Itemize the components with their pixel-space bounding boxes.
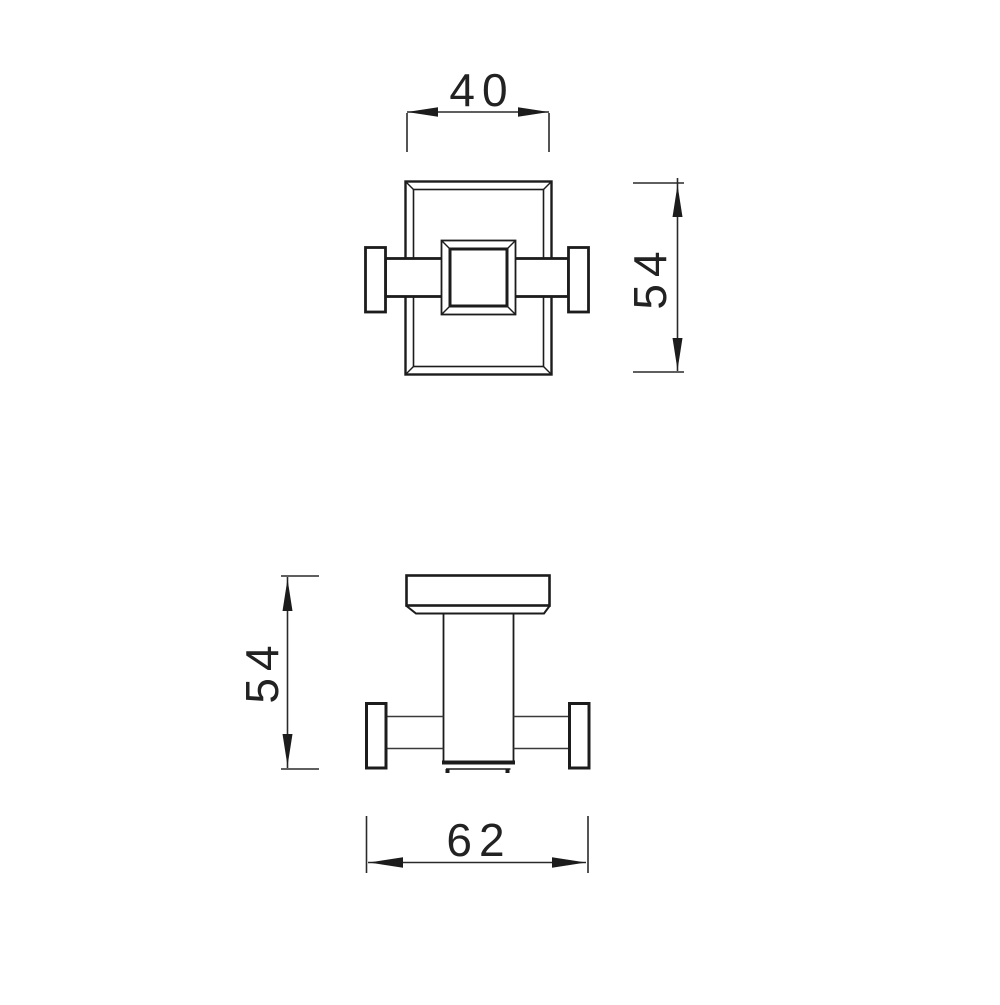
side-wallplate-skirt	[407, 606, 550, 614]
front-width-dimension: 40	[407, 64, 549, 152]
side-post-foot-left	[446, 769, 450, 773]
side-width-dimension: 62	[367, 814, 589, 873]
side-height-dimension: 54	[236, 576, 319, 769]
front-left-peg-cap	[366, 248, 386, 313]
front-center-boss-outer	[442, 241, 516, 315]
side-width-dim-label: 62	[446, 814, 511, 866]
side-height-arrow-down	[283, 734, 293, 766]
front-width-arrow-left	[407, 107, 438, 117]
front-width-arrow-right	[518, 107, 549, 117]
side-post-foot-right	[506, 769, 510, 773]
front-view	[366, 182, 589, 375]
side-wallplate	[407, 576, 550, 606]
side-height-arrow-up	[283, 579, 293, 611]
side-width-arrow-right	[552, 857, 586, 867]
side-right-peg-cap	[570, 704, 590, 769]
side-width-arrow-left	[369, 857, 403, 867]
side-left-peg-cap	[367, 704, 387, 769]
side-view	[367, 576, 590, 774]
front-height-dimension: 54	[624, 178, 684, 372]
side-height-dim-label: 54	[236, 638, 288, 703]
front-height-dim-label: 54	[624, 244, 676, 309]
front-width-dim-label: 40	[449, 64, 514, 116]
front-height-arrow-down	[673, 338, 683, 370]
front-right-peg-cap	[569, 248, 589, 313]
technical-drawing-page: 40 54	[0, 0, 1000, 1000]
robe-hook-dimension-drawing: 40 54	[0, 0, 1000, 1000]
front-height-arrow-up	[673, 185, 683, 217]
